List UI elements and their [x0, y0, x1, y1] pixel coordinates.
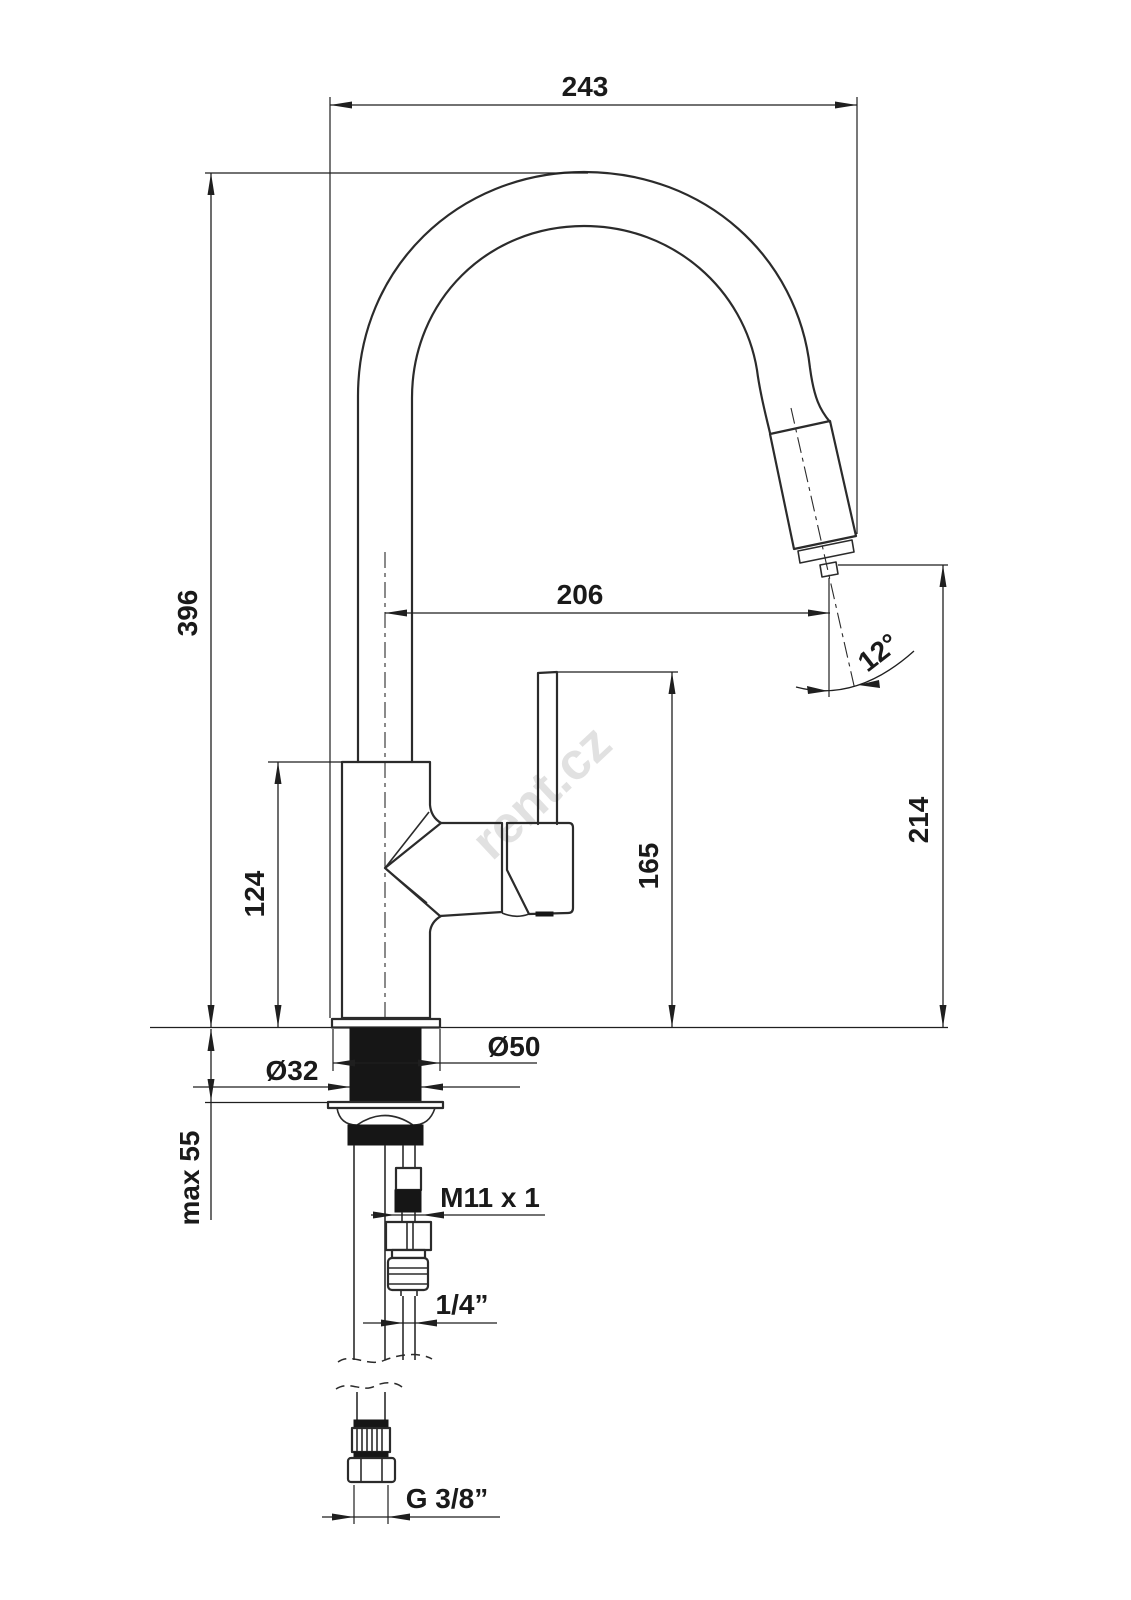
m11-fitting-top	[396, 1168, 421, 1190]
housing-clip	[536, 912, 553, 916]
spray-head-axis	[791, 408, 855, 690]
dim-label-base-diameter: Ø50	[488, 1031, 541, 1062]
braided-hose-end	[348, 1420, 395, 1482]
watermark: rent.cz	[461, 714, 623, 871]
dim-label-overall-width: 243	[562, 71, 609, 102]
dim-spray-angle: 12°	[796, 578, 914, 697]
dim-overall-width: 243	[330, 71, 857, 1018]
spout-arc	[358, 172, 830, 762]
mounting-nut	[337, 1108, 435, 1125]
supply-hose	[354, 1145, 385, 1420]
dim-body-height: 124	[239, 762, 342, 1027]
faucet-technical-drawing-page: rent.cz	[0, 0, 1131, 1600]
break-lines	[336, 1355, 432, 1389]
lock-nut	[348, 1125, 423, 1145]
hex-coupling	[386, 1222, 431, 1250]
dim-label-overall-height: 396	[172, 590, 203, 637]
dim-label-hose-thread: M11 x 1	[440, 1182, 540, 1213]
dim-label-max-counter-thickness: max 55	[174, 1131, 205, 1226]
dim-label-supply-thread: G 3/8”	[406, 1483, 488, 1514]
g38-nut	[348, 1458, 395, 1482]
faucet-dimension-drawing: rent.cz	[0, 0, 1131, 1600]
dim-label-spray-angle: 12°	[852, 627, 904, 677]
dim-label-outlet-height: 214	[903, 796, 934, 843]
dim-overall-height: 396	[172, 173, 588, 1027]
dim-hose-diameter: 1/4”	[363, 1289, 497, 1327]
threaded-shank	[350, 1028, 421, 1102]
dim-spout-reach: 206	[385, 579, 830, 617]
spray-head	[770, 408, 856, 690]
dim-label-lever-height: 165	[633, 843, 664, 890]
dim-label-spout-reach: 206	[557, 579, 604, 610]
dim-outlet-height: 214	[838, 565, 948, 1027]
dim-label-body-height: 124	[239, 870, 270, 917]
mounting-washer	[328, 1102, 443, 1108]
dim-label-hose-diameter: 1/4”	[436, 1289, 489, 1320]
m11-fitting-thread	[395, 1190, 421, 1212]
spray-hose-assembly	[386, 1145, 431, 1360]
dim-label-shank-diameter: Ø32	[266, 1055, 319, 1086]
base-flange	[332, 1019, 440, 1028]
dim-supply-thread: G 3/8”	[322, 1483, 500, 1524]
